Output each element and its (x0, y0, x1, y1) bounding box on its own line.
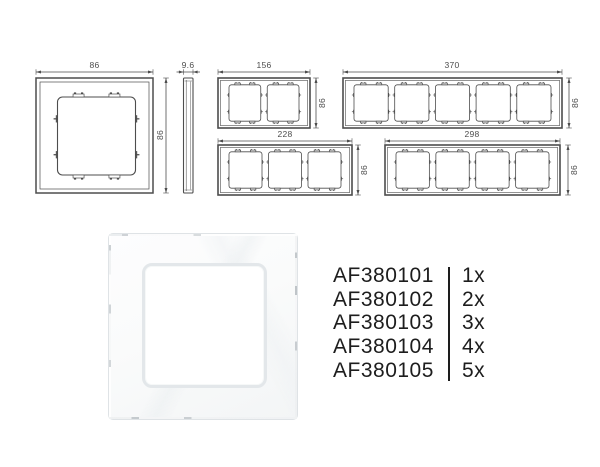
product-row: AF380103 3x (333, 311, 485, 335)
drawing-frame-5gang (343, 69, 572, 128)
product-row: AF380101 1x (333, 264, 485, 288)
product-qty: 4x (448, 335, 485, 359)
product-qty: 1x (448, 264, 485, 288)
dim-label-gang2-width: 156 (246, 60, 282, 70)
photo-frame-opening (142, 263, 267, 388)
drawing-frame-4gang (385, 138, 571, 195)
technical-drawings (0, 0, 600, 230)
dim-label-side-thickness: 9.6 (174, 60, 202, 70)
datasheet: 86 9.6 156 370 228 298 86 86 86 86 86 AF… (0, 0, 600, 467)
drawing-frame-side-profile (177, 69, 201, 193)
product-code: AF380103 (333, 311, 448, 335)
dim-label-single-width: 86 (82, 60, 107, 70)
drawing-frame-2gang (218, 69, 319, 128)
dim-label-gang4-height: 86 (569, 158, 579, 182)
product-code: AF380104 (333, 335, 448, 359)
dim-label-gang5-width: 370 (432, 60, 472, 70)
photo-glass-edge-bottom (109, 417, 297, 419)
product-row: AF380105 5x (333, 359, 485, 383)
dim-label-gang5-height: 86 (570, 91, 580, 115)
drawing-frame-1gang-front (36, 69, 169, 193)
product-code: AF380101 (333, 264, 448, 288)
photo-glass-edge-right (295, 234, 297, 419)
product-qty: 3x (448, 311, 485, 335)
product-code: AF380105 (333, 359, 448, 383)
product-row: AF380104 4x (333, 335, 485, 359)
product-qty: 2x (448, 288, 485, 312)
dim-label-gang3-height: 86 (359, 158, 369, 182)
product-list: AF380101 1x AF380102 2x AF380103 3x AF38… (333, 264, 485, 383)
dim-label-gang2-height: 86 (317, 91, 327, 115)
drawing-frame-3gang (218, 138, 361, 195)
product-code: AF380102 (333, 288, 448, 312)
product-qty: 5x (448, 359, 485, 383)
product-row: AF380102 2x (333, 288, 485, 312)
product-photo-single-frame (108, 233, 298, 420)
photo-glass-edge-left (109, 234, 111, 419)
dim-label-single-height: 86 (155, 123, 165, 147)
dim-label-gang4-width: 298 (452, 129, 492, 139)
dim-label-gang3-width: 228 (265, 129, 305, 139)
photo-glass-edge-top (109, 234, 297, 236)
